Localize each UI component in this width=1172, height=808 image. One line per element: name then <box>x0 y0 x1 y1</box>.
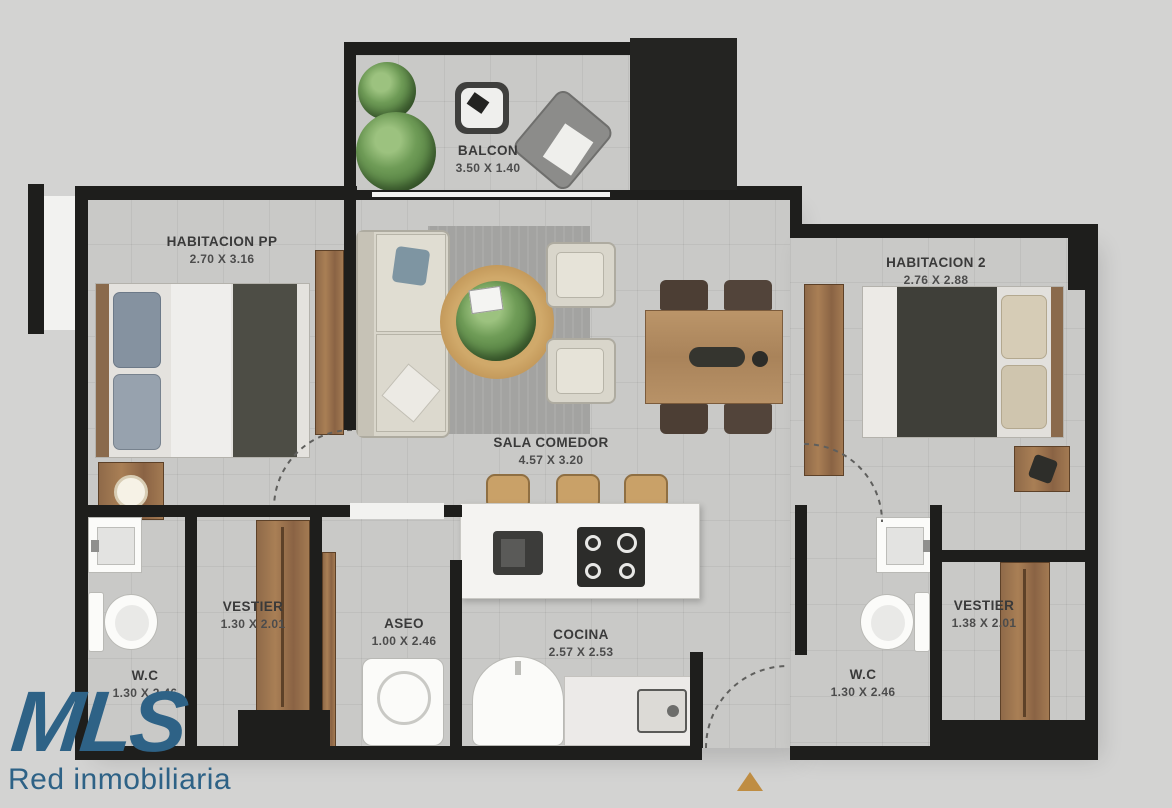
bed-pillow <box>1001 365 1047 429</box>
armchair <box>546 338 616 404</box>
bed-pillow <box>1001 295 1047 359</box>
wall <box>1085 224 1098 748</box>
room-name: W.C <box>850 666 877 684</box>
sofa-backrest <box>358 232 374 436</box>
burner <box>585 563 601 579</box>
armchair-cushion <box>556 348 604 394</box>
bathroom-sink <box>876 517 932 573</box>
room-name: BALCON <box>458 142 518 160</box>
bed-sheet <box>863 287 897 437</box>
bed-headboard <box>1051 287 1063 437</box>
vestier-closet <box>1000 562 1050 722</box>
room-label-aseo: ASEO 1.00 X 2.46 <box>344 615 464 649</box>
armchair-cushion <box>556 252 604 298</box>
door-arc <box>802 442 884 524</box>
armchair <box>546 242 616 308</box>
lamp-icon <box>1028 454 1059 485</box>
door-arc <box>704 664 790 750</box>
toilet-icon <box>104 594 158 650</box>
bed-pillow <box>113 292 161 368</box>
toilet-icon <box>860 594 914 650</box>
room-dims: 1.30 X 2.01 <box>221 616 286 632</box>
wall-block <box>630 38 737 192</box>
oven-knob <box>667 705 679 717</box>
books-icon <box>468 286 503 314</box>
room-name: ASEO <box>384 615 424 633</box>
stove-icon <box>577 527 645 587</box>
master-closet <box>315 250 344 435</box>
wall <box>930 550 1098 562</box>
bowl-icon <box>752 351 768 367</box>
dining-chair <box>660 404 708 434</box>
sink-basin <box>97 527 135 565</box>
mls-logo: MLS Red inmobiliaria <box>8 684 231 797</box>
oven-icon <box>637 689 687 733</box>
wall <box>450 560 462 748</box>
balcony-side-table <box>455 82 509 134</box>
bed-blanket <box>897 287 997 437</box>
wall <box>790 224 1098 238</box>
sliding-glass-door <box>372 192 610 197</box>
room-dims: 4.57 X 3.20 <box>519 452 584 468</box>
kitchen-counter <box>564 676 692 746</box>
bed-pillow <box>113 374 161 450</box>
entrance-marker-icon <box>737 772 763 791</box>
dining-table <box>645 310 783 404</box>
kitchen-island <box>460 503 700 599</box>
faucet-icon <box>91 540 99 552</box>
room-name: VESTIER <box>954 597 1015 615</box>
burner <box>619 563 635 579</box>
room-dims: 3.50 X 1.40 <box>456 160 521 176</box>
room-name: COCINA <box>553 626 609 644</box>
room-label-vestier-1: VESTIER 1.30 X 2.01 <box>193 598 313 632</box>
room-label-balcon: BALCON 3.50 X 1.40 <box>408 142 568 176</box>
wall-block <box>935 720 1098 750</box>
burner <box>617 533 637 553</box>
floorplan-canvas: BALCON 3.50 X 1.40 HABITACION PP 2.70 X … <box>0 0 1172 808</box>
window-bay <box>44 196 75 330</box>
sink-basin <box>886 527 924 565</box>
room-name: VESTIER <box>223 598 284 616</box>
lamp-icon <box>114 475 148 509</box>
room-label-sala-comedor: SALA COMEDOR 4.57 X 3.20 <box>451 434 651 468</box>
table-runner <box>689 347 745 367</box>
washing-machine <box>362 658 444 746</box>
room-dims: 2.76 X 2.88 <box>904 272 969 288</box>
sink-icon <box>493 531 543 575</box>
wall <box>75 186 357 200</box>
toilet-bowl <box>871 605 905 641</box>
room-dims: 2.70 X 3.16 <box>190 251 255 267</box>
room-label-cocina: COCINA 2.57 X 2.53 <box>501 626 661 660</box>
washer-drum <box>377 671 431 725</box>
bathroom-sink <box>88 517 142 573</box>
burner <box>585 535 601 551</box>
room-dims: 2.57 X 2.53 <box>549 644 614 660</box>
room-name: HABITACION PP <box>167 233 278 251</box>
logo-brand-text: MLS <box>8 684 239 761</box>
dining-chair <box>724 404 772 434</box>
door-arc <box>272 428 354 510</box>
dining-chair <box>724 280 772 310</box>
wall <box>344 198 356 430</box>
bed-sheet <box>171 284 231 457</box>
wall-bar <box>28 184 44 334</box>
plant-pot-icon <box>358 62 416 120</box>
dining-chair <box>660 280 708 310</box>
room-dims: 1.00 X 2.46 <box>372 633 437 649</box>
wall <box>690 652 703 748</box>
throw-pillow <box>392 246 431 286</box>
room-name: SALA COMEDOR <box>493 434 608 452</box>
room-dims: 1.30 X 2.46 <box>831 684 896 700</box>
room-label-wc-2: W.C 1.30 X 2.46 <box>803 666 923 700</box>
toilet-tank <box>88 592 104 652</box>
wall <box>344 42 356 200</box>
wall-block <box>1068 224 1098 290</box>
round-appliance <box>472 656 564 746</box>
wall-block <box>238 710 330 748</box>
nightstand <box>1014 446 1070 492</box>
room-dims: 1.38 X 2.01 <box>952 615 1017 631</box>
room-name: HABITACION 2 <box>886 254 986 272</box>
wall <box>795 505 807 655</box>
wall <box>344 42 642 55</box>
aseo-door <box>350 503 444 519</box>
appliance-handle <box>515 661 521 675</box>
room-label-habitacion-pp: HABITACION PP 2.70 X 3.16 <box>122 233 322 267</box>
toilet-bowl <box>115 605 149 641</box>
bed-secondary <box>862 286 1064 438</box>
sofa <box>356 230 450 438</box>
bed-headboard <box>96 284 109 457</box>
room-label-habitacion-2: HABITACION 2 2.76 X 2.88 <box>836 254 1036 288</box>
sink-basin <box>501 539 525 567</box>
closet-rod <box>1023 569 1026 717</box>
room-label-vestier-2: VESTIER 1.38 X 2.01 <box>924 597 1044 631</box>
